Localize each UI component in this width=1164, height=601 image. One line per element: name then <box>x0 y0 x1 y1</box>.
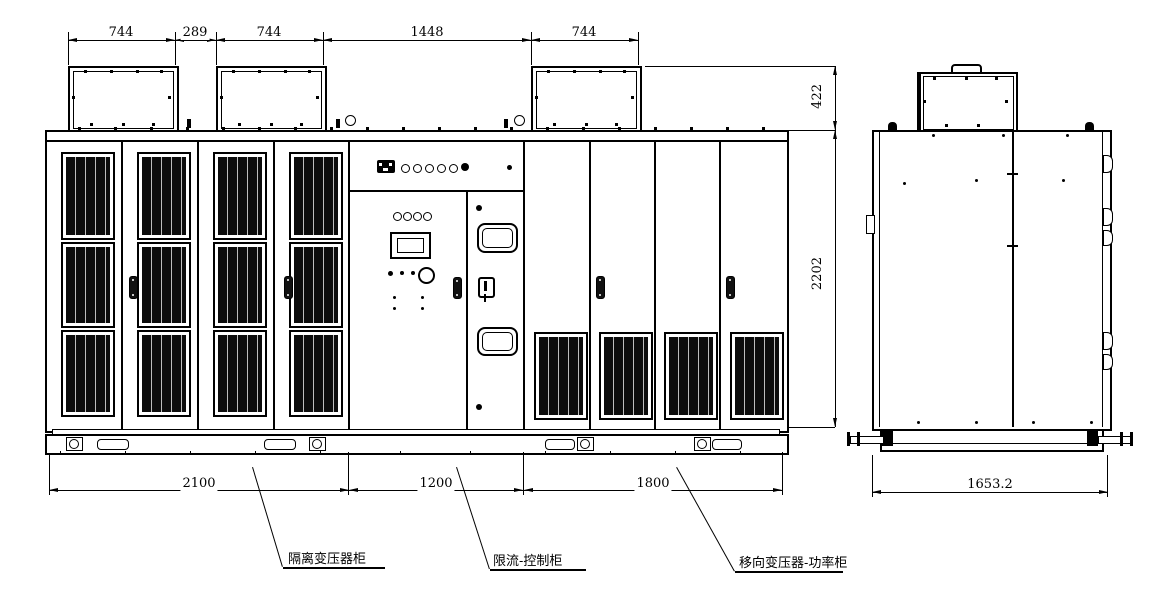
bolt <box>585 123 588 126</box>
base-roller <box>577 437 594 451</box>
vent-louvers <box>218 335 262 412</box>
roller-wheel <box>312 439 322 449</box>
panel-bolt <box>1002 134 1005 137</box>
vent-louvers <box>218 157 262 235</box>
dim-label-power-width: 1800 <box>634 477 671 491</box>
indicator-light <box>461 163 469 171</box>
extension-line <box>782 452 783 495</box>
cabinet-side-body <box>872 130 1112 431</box>
callout-current-limit-control-cabinet: 限流-控制柜 <box>493 553 562 568</box>
bolt <box>232 70 235 73</box>
arrowhead <box>349 488 358 492</box>
panel-dot <box>421 307 424 310</box>
door-hinge <box>1103 354 1113 370</box>
brand-mark <box>389 163 392 166</box>
fan-housing <box>68 66 179 134</box>
door-divider <box>121 142 123 429</box>
base-slot <box>97 439 129 450</box>
ground-tick <box>545 451 546 455</box>
split-line-tick <box>1007 173 1018 175</box>
vent-grille <box>61 242 115 328</box>
bracket-flange <box>1120 432 1123 446</box>
ground-tick <box>190 451 191 455</box>
arrowhead <box>833 130 837 139</box>
lifting-lug <box>888 122 897 130</box>
lock-tail <box>484 294 486 302</box>
bolt <box>615 123 618 126</box>
base-mounting-bracket <box>1098 436 1132 444</box>
arrowhead <box>629 38 638 42</box>
fan-housing <box>216 66 327 134</box>
arrowhead <box>68 38 77 42</box>
door-handle[interactable] <box>129 276 138 299</box>
lock-icon[interactable] <box>478 277 495 298</box>
side-base-channel <box>880 429 1104 452</box>
ground-tick <box>610 451 611 455</box>
viewing-window <box>477 327 518 356</box>
arrowhead <box>514 488 523 492</box>
indicator-light <box>401 164 410 173</box>
vent-louvers <box>539 337 583 415</box>
fan-housing-side <box>917 72 1018 134</box>
bracket-flange <box>847 432 850 446</box>
door-divider <box>719 142 721 429</box>
leader-underline <box>735 571 843 573</box>
door-handle[interactable] <box>284 276 293 299</box>
dim-label-cabinet-height: 2202 <box>810 257 825 290</box>
ground-tick <box>125 451 126 455</box>
panel-bolt <box>476 205 482 211</box>
door-divider <box>273 142 275 429</box>
dimension-line <box>49 490 783 491</box>
side-door-split-line <box>1012 130 1014 427</box>
ground-tick <box>400 451 401 455</box>
extension-line <box>175 32 176 65</box>
dim-label-fan3-width: 744 <box>570 26 599 40</box>
ground-tick <box>255 451 256 455</box>
base-slot <box>264 439 296 450</box>
extension-line <box>531 32 532 65</box>
vent-louvers <box>294 157 338 235</box>
indicator-light <box>413 212 422 221</box>
dim-label-control-width: 1200 <box>417 477 454 491</box>
fan-housing <box>531 66 642 134</box>
vent-louvers <box>142 157 186 235</box>
extension-line <box>645 66 835 67</box>
arrowhead <box>833 66 837 75</box>
door-hinge <box>1103 155 1113 173</box>
indicator-light <box>423 212 432 221</box>
base-end-block <box>1087 431 1098 446</box>
bolt <box>923 100 926 103</box>
side-frame-line <box>879 130 880 427</box>
arrowhead <box>522 38 531 42</box>
extension-line <box>787 130 835 131</box>
fan-housing-frame <box>73 71 174 129</box>
dim-label-fan-gap: 289 <box>181 26 210 40</box>
bolt <box>933 77 936 80</box>
vent-grille <box>61 330 115 417</box>
panel-bolt <box>507 165 512 170</box>
bolt <box>547 70 550 73</box>
bolt <box>965 77 968 80</box>
control-button[interactable] <box>388 271 393 276</box>
arrowhead <box>833 121 837 130</box>
door-hinge <box>1103 332 1113 350</box>
vent-grille <box>213 330 267 417</box>
vent-grille <box>289 152 343 240</box>
dimension-line <box>68 40 638 41</box>
viewing-window <box>477 223 518 253</box>
panel-bolt <box>917 421 920 424</box>
ground-tick <box>60 451 61 455</box>
control-button[interactable] <box>411 271 415 275</box>
panel-bolt <box>1066 134 1069 137</box>
bolt <box>308 70 311 73</box>
bolt <box>553 123 556 126</box>
bolt <box>284 70 287 73</box>
panel-bolt <box>903 182 906 185</box>
door-handle[interactable] <box>596 276 605 299</box>
bolt <box>122 123 125 126</box>
bolt <box>270 123 273 126</box>
control-top-panel-line <box>349 190 524 192</box>
bolt <box>220 96 223 99</box>
viewing-window-inner <box>482 332 513 351</box>
bolt <box>599 70 602 73</box>
lock-bar <box>484 281 487 291</box>
key-switch[interactable] <box>418 267 435 284</box>
base-mounting-bracket <box>850 436 884 444</box>
bolt <box>1005 100 1008 103</box>
bolt <box>631 96 634 99</box>
vent-grille <box>61 152 115 240</box>
door-divider <box>589 142 591 429</box>
brand-plate <box>377 160 395 173</box>
roller-wheel <box>580 439 590 449</box>
arrowhead <box>872 490 881 494</box>
bolt <box>238 123 241 126</box>
base-slot <box>712 439 742 450</box>
door-divider <box>197 142 199 429</box>
bolt <box>110 70 113 73</box>
door-divider <box>654 142 656 429</box>
arrowhead <box>531 38 540 42</box>
extension-line <box>787 427 835 428</box>
panel-bolt <box>975 179 978 182</box>
fan-housing-frame <box>536 71 637 129</box>
leader-underline <box>283 567 385 569</box>
arrowhead <box>166 38 175 42</box>
arrowhead <box>340 488 349 492</box>
bolt <box>573 70 576 73</box>
control-button[interactable] <box>400 271 404 275</box>
vent-grille <box>213 242 267 328</box>
brand-mark <box>379 163 382 166</box>
vent-grille <box>137 152 191 240</box>
split-line-tick <box>1007 245 1018 247</box>
brand-mark <box>383 168 388 171</box>
dimension-line <box>872 492 1108 493</box>
lifting-lug <box>1085 122 1094 130</box>
roller-wheel <box>697 439 707 449</box>
arrowhead <box>314 38 323 42</box>
vent-louvers <box>294 247 338 323</box>
hmi-screen-inner <box>397 238 424 253</box>
ground-tick <box>320 451 321 455</box>
bolt <box>945 124 948 127</box>
leader-line <box>252 467 283 567</box>
ground-tick <box>740 451 741 455</box>
vent-grille <box>289 242 343 328</box>
bolt <box>300 123 303 126</box>
vent-grille <box>534 332 588 420</box>
extension-line <box>638 32 639 65</box>
arrowhead <box>524 488 533 492</box>
panel-dot <box>393 296 396 299</box>
panel-bolt <box>975 421 978 424</box>
indicator-light <box>449 164 458 173</box>
vent-grille <box>213 152 267 240</box>
vent-louvers <box>218 247 262 323</box>
vent-grille <box>730 332 784 420</box>
vent-grille <box>664 332 718 420</box>
arrowhead <box>833 418 837 427</box>
roller-wheel <box>69 439 79 449</box>
arrowhead <box>773 488 782 492</box>
indicator-light <box>437 164 446 173</box>
viewing-window-inner <box>482 228 513 248</box>
vent-grille <box>599 332 653 420</box>
door-hinge <box>1103 208 1113 226</box>
fan-housing-frame <box>221 71 322 129</box>
side-latch <box>866 215 875 234</box>
panel-bolt <box>476 404 482 410</box>
bolt <box>535 96 538 99</box>
extension-line <box>323 32 324 65</box>
panel-bolt <box>1032 421 1035 424</box>
door-handle[interactable] <box>453 277 462 299</box>
base-roller <box>66 437 83 451</box>
vent-louvers <box>66 247 110 323</box>
vent-grille <box>137 242 191 328</box>
section-divider <box>348 140 350 429</box>
leader-line <box>456 467 490 569</box>
extension-line <box>68 32 69 65</box>
leader-line <box>676 467 735 571</box>
section-divider <box>523 140 525 429</box>
control-panel-divider <box>466 192 468 429</box>
panel-bolt <box>1090 421 1093 424</box>
leader-underline <box>490 569 586 571</box>
dimension-line <box>835 130 836 427</box>
vent-louvers <box>294 335 338 412</box>
indicator-light <box>403 212 412 221</box>
arrowhead <box>49 488 58 492</box>
vent-louvers <box>735 337 779 415</box>
dim-label-fan-height: 422 <box>810 84 825 109</box>
callout-phase-shift-transformer-power-cabinet: 移向变压器-功率柜 <box>739 555 847 570</box>
bolt <box>623 70 626 73</box>
bracket-flange <box>857 432 860 446</box>
bolt <box>995 77 998 80</box>
ground-tick <box>675 451 676 455</box>
bolt <box>90 123 93 126</box>
dim-label-fan-span: 1448 <box>408 26 445 40</box>
indicator-light <box>413 164 422 173</box>
vent-louvers <box>142 335 186 412</box>
arrowhead <box>323 38 332 42</box>
arrowhead <box>1099 490 1108 494</box>
dim-label-depth: 1653.2 <box>965 478 1015 492</box>
ground-tick <box>470 451 471 455</box>
hmi-screen[interactable] <box>390 232 431 259</box>
bolt <box>977 124 980 127</box>
indicator-light <box>393 212 402 221</box>
vent-louvers <box>66 157 110 235</box>
panel-dot <box>393 307 396 310</box>
dim-label-fan1-width: 744 <box>107 26 136 40</box>
vent-louvers <box>604 337 648 415</box>
dim-label-isolation-width: 2100 <box>180 477 217 491</box>
indicator-light <box>425 164 434 173</box>
bolt <box>316 96 319 99</box>
bolt <box>168 96 171 99</box>
drawing-canvas: 744 289 744 1448 744 <box>0 0 1164 601</box>
lifting-eye <box>514 115 525 126</box>
base-slot <box>545 439 575 450</box>
bolt <box>160 70 163 73</box>
vent-louvers <box>142 247 186 323</box>
extension-line <box>216 32 217 65</box>
door-handle[interactable] <box>726 276 735 299</box>
base-plinth <box>45 434 789 455</box>
door-hinge <box>1103 230 1113 246</box>
fan-housing-frame <box>923 76 1014 130</box>
arrowhead <box>216 38 225 42</box>
side-frame-line <box>1102 130 1103 427</box>
panel-dot <box>421 296 424 299</box>
base-inner-line <box>893 443 1087 444</box>
bolt <box>258 70 261 73</box>
base-roller <box>694 437 711 451</box>
panel-bolt <box>932 134 935 137</box>
base-roller <box>309 437 326 451</box>
bracket-flange <box>1130 432 1133 446</box>
vent-grille <box>289 330 343 417</box>
vent-grille <box>137 330 191 417</box>
vent-louvers <box>669 337 713 415</box>
callout-isolation-transformer-cabinet: 隔离变压器柜 <box>288 551 366 566</box>
bolt <box>84 70 87 73</box>
dim-label-fan2-width: 744 <box>255 26 284 40</box>
bolt <box>152 123 155 126</box>
bolt <box>136 70 139 73</box>
panel-bolt <box>1062 179 1065 182</box>
lifting-eye <box>345 115 356 126</box>
bolt <box>72 96 75 99</box>
vent-louvers <box>66 335 110 412</box>
